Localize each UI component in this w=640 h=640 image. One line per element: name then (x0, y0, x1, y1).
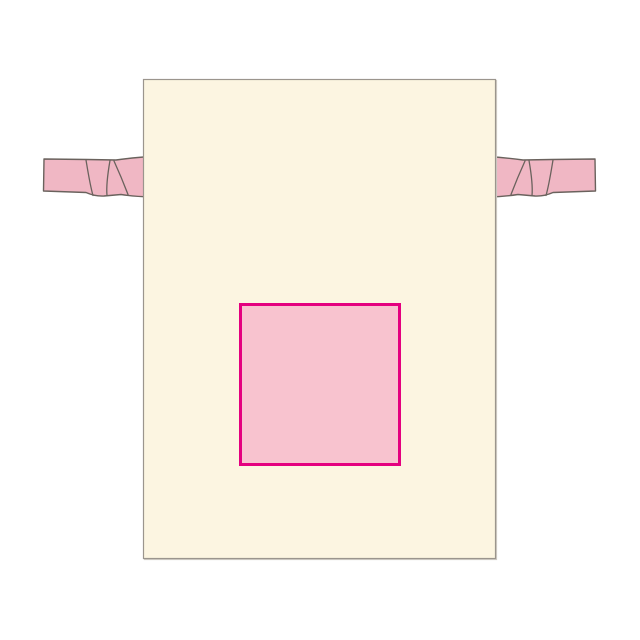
drawstring-left-ribbon (44, 157, 151, 198)
drawstring-right (489, 157, 596, 198)
pouch-mockup-stage (0, 0, 640, 640)
print-area[interactable] (241, 305, 400, 465)
drawstring-pouch-mockup (0, 0, 640, 640)
drawstring-left (44, 157, 151, 198)
drawstring-right-ribbon (489, 157, 596, 198)
